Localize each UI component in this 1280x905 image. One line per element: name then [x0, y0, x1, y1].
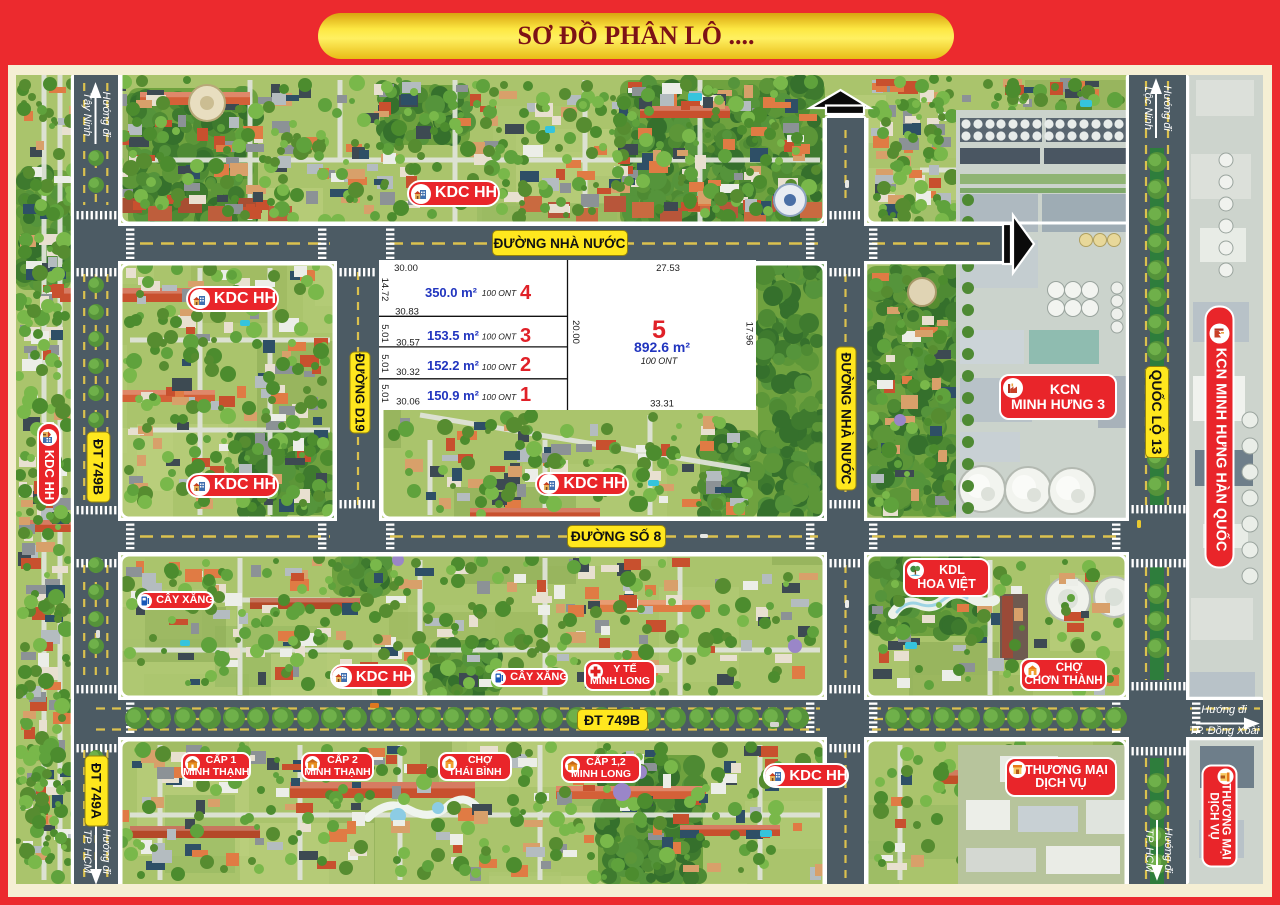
svg-text:30.06: 30.06 — [396, 397, 420, 408]
svg-text:350.0 m²: 350.0 m² — [425, 285, 478, 300]
svg-text:5.01: 5.01 — [379, 354, 390, 373]
svg-text:100 ONT: 100 ONT — [482, 332, 517, 342]
svg-text:100 ONT: 100 ONT — [482, 288, 517, 298]
svg-text:100 ONT: 100 ONT — [482, 362, 517, 372]
svg-text:4: 4 — [520, 282, 532, 304]
svg-text:27.53: 27.53 — [656, 263, 680, 274]
svg-text:3: 3 — [520, 325, 531, 347]
svg-text:153.5 m²: 153.5 m² — [427, 328, 480, 343]
svg-text:100 ONT: 100 ONT — [641, 356, 679, 366]
svg-text:33.31: 33.31 — [650, 399, 674, 410]
svg-text:892.6 m²: 892.6 m² — [634, 339, 690, 355]
svg-text:30.32: 30.32 — [396, 367, 420, 378]
svg-text:14.72: 14.72 — [379, 278, 390, 302]
svg-text:5.01: 5.01 — [379, 384, 390, 403]
svg-text:30.00: 30.00 — [394, 263, 418, 274]
svg-text:30.57: 30.57 — [396, 338, 420, 349]
svg-text:5.01: 5.01 — [379, 324, 390, 343]
svg-text:150.9 m²: 150.9 m² — [427, 388, 480, 403]
svg-text:100 ONT: 100 ONT — [482, 392, 517, 402]
svg-text:152.2 m²: 152.2 m² — [427, 358, 480, 373]
svg-text:20.00: 20.00 — [570, 320, 581, 344]
svg-text:1: 1 — [520, 384, 531, 406]
svg-text:2: 2 — [520, 354, 531, 376]
svg-text:30.83: 30.83 — [395, 307, 419, 318]
svg-text:17.96: 17.96 — [744, 322, 755, 346]
